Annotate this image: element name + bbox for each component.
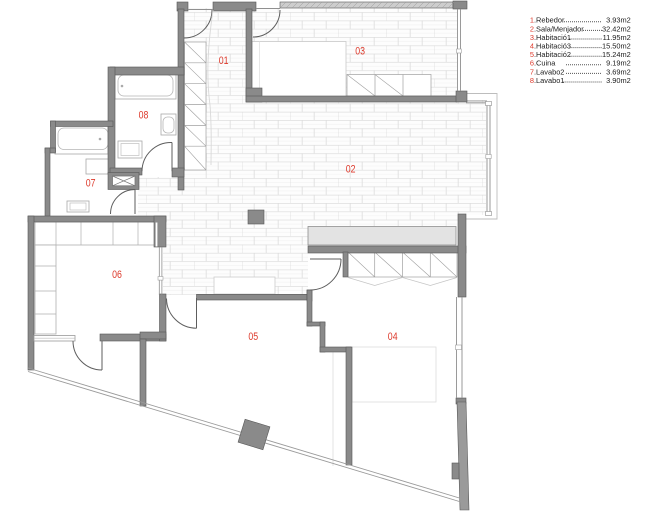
- svg-text:02: 02: [346, 163, 356, 175]
- svg-text:04: 04: [388, 331, 398, 343]
- svg-text:01: 01: [219, 55, 229, 67]
- svg-text:3.90m2: 3.90m2: [606, 76, 631, 85]
- svg-text:03: 03: [355, 46, 365, 58]
- svg-text:06: 06: [112, 269, 122, 281]
- svg-text:05: 05: [248, 331, 258, 343]
- svg-text:.Lavabo1: .Lavabo1: [534, 76, 564, 85]
- svg-text:08: 08: [139, 110, 149, 122]
- svg-text:07: 07: [86, 178, 96, 190]
